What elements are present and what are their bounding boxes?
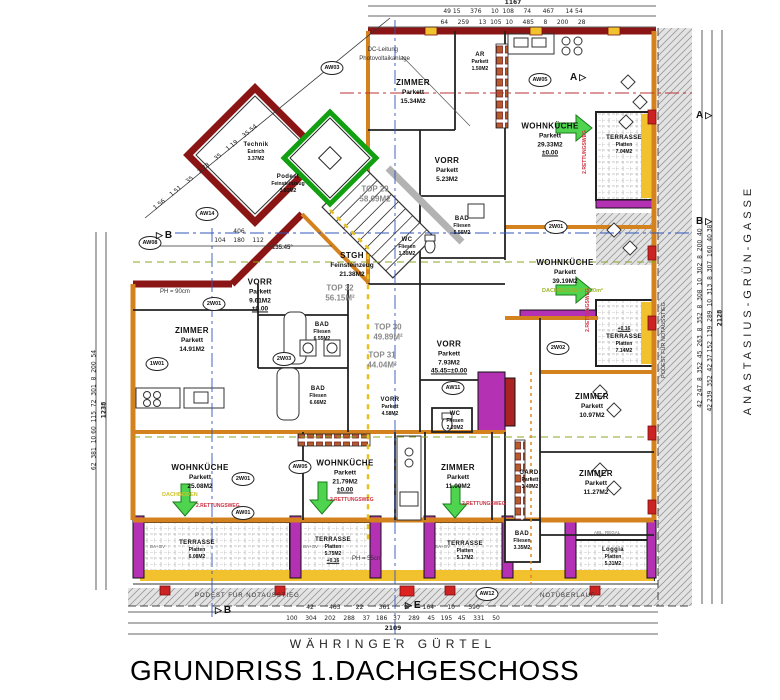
section-marker-a-top: A▷ [570, 72, 586, 83]
room-label-vorr-793: VORR Parkett 7.93M2 45.45=±0.00 [431, 339, 467, 376]
top-29-label: TOP 29 58.69M2 [359, 185, 390, 206]
room-label-technik: Technik Estrich 3.37M2 [243, 141, 268, 163]
top-31-label: TOP 31 44.04M² [367, 351, 396, 372]
top-32-label: TOP 32 56.15M² [325, 284, 354, 305]
triangle-icon: ▷ [215, 605, 222, 616]
dim-bottom-row2: 100 304 202 288 37 186 37 289 45 195 45 … [286, 615, 500, 622]
dim-top-row1: 49 15 376 10 108 74 467 14 54 [443, 8, 582, 15]
room-label-loggia: Loggia Platten 5.31M2 [602, 546, 624, 568]
room-label-wohnkueche-3919: WOHNKÜCHE Parkett 39.19M2 [536, 258, 593, 286]
dc-leitung-label: DC-Leitung [368, 47, 398, 53]
room-label-bad-556: BAD Fliesen 5.56M2 [453, 215, 470, 237]
room-label-bad-655: BAD Fliesen 6.55M2 [313, 321, 330, 343]
section-marker-b-left: ▷B [156, 230, 172, 241]
room-label-stgh: STGH Feinsteinzeug 21.38M2 [330, 251, 373, 279]
wall-tag-2w01-right: 2W01 [545, 220, 568, 234]
room-label-terrasse-714: +0.16 TERRASSE Platten 7.14M2 [606, 326, 642, 354]
room-label-wohnkueche-2508: WOHNKÜCHE Parkett 25.08M2 [171, 463, 228, 491]
room-label-wc-130: WC Fliesen 1.30M2 [398, 236, 415, 258]
top-30-label: TOP 30 49.89M² [373, 323, 402, 344]
dim-right-col1: 42 247 8 352 45 263 8 352 8 308 10 302 8… [697, 228, 704, 407]
room-label-gard: GARD. Parkett 3.40M2 [519, 469, 540, 491]
wall-tag-aw11: AW11 [442, 381, 465, 395]
dim-right-total: 2128 [717, 310, 724, 327]
dim-right-col2: 42 239 352 42 37 152 139 289 10 313 8 30… [707, 224, 714, 411]
dim-left-total: 1238 [101, 402, 108, 419]
room-label-wohnkueche-2179: WOHNKÜCHE Parkett 21.79M2 ±0.00 [316, 458, 373, 495]
room-label-zimmer-1534: ZIMMER Parkett 15.34M2 [396, 78, 430, 106]
wall-tag-aw14: AW14 [196, 207, 219, 221]
rettungsweg-label-4: 2.RETTUNGSWEG [330, 497, 374, 503]
dim-406-sub: 104 180 112 [214, 237, 264, 244]
room-label-zimmer-1491: ZIMMER Parkett 14.91M2 [175, 326, 209, 354]
room-label-terrasse-575: TERRASSE Platten 5.75M2 +0.16 [315, 536, 351, 564]
parapet-height-55: PH = 55cm [352, 556, 382, 562]
room-label-wohnkueche-2933: WOHNKÜCHE Parkett 29.33M2 ±0.00 [521, 121, 578, 158]
room-label-vorr-523: VORR Parkett 5.23M2 [435, 156, 460, 184]
ba-gv-2: BA+GV [303, 544, 318, 549]
dim-top-row2: 64 259 13 105 10 485 8 200 28 [440, 19, 585, 26]
triangle-icon: ▷ [705, 110, 712, 121]
ba-gv-3: BA+GV [435, 544, 450, 549]
triangle-icon: ▷ [705, 216, 712, 227]
room-label-vorr-458: VORR Parkett 4.58M2 [381, 396, 400, 418]
triangle-icon: ▷ [156, 230, 163, 241]
room-label-terrasse-517: TERRASSE Platten 5.17M2 [447, 540, 483, 562]
room-label-terrasse-704: TERRASSE Platten 7.04M2 [606, 134, 642, 156]
triangle-icon: ▷ [579, 72, 586, 83]
wall-tag-aw05-bottom: AW05 [289, 460, 312, 474]
room-label-terrasse-608: TERRASSE Platten 6.08M2 [179, 539, 215, 561]
wall-tag-aw05-top: AW05 [529, 73, 552, 87]
room-label-zimmer-1127: ZIMMER Parkett 11.27M2 [579, 469, 613, 497]
dim-406: 406 [233, 228, 244, 235]
rettungsweg-label-5: 2.RETTUNGSWEG [462, 501, 506, 507]
dachboden-note-yellow: DACHBODEN [162, 492, 198, 498]
rettungsweg-label-1: 2.RETTUNGSWEG [582, 130, 588, 174]
rettungsweg-label-2: 2.RETTUNGSWEG [585, 288, 591, 332]
wall-tag-1w01: 1W01 [146, 357, 169, 371]
room-label-zimmer-1097: ZIMMER Parkett 10.97M2 [575, 392, 609, 420]
section-marker-b-bottom: ▷B [215, 605, 231, 616]
wall-tag-aw03: AW03 [321, 61, 344, 75]
section-marker-b-right: B▷ [696, 216, 712, 227]
dim-bottom-total: 2109 [385, 625, 402, 632]
wall-tag-aw12: AW12 [476, 587, 499, 601]
dachboden-note-green: DACHBODEN 171.20m² [542, 288, 603, 294]
dim-left-col: 62 381 10 60 115 72 301 8 200 54 [91, 350, 98, 470]
lift-shaft [478, 372, 505, 432]
abl-regal-label: ABL. REGAL [594, 530, 620, 535]
wall-tag-2w03: 2W03 [273, 352, 296, 366]
photovoltaik-label: Photovoltaikanlage [359, 56, 410, 62]
room-label-bad-335: BAD Fliesen 3.35M2 [513, 530, 530, 552]
room-label-bad-666: BAD Fliesen 6.66M2 [309, 385, 326, 407]
wall-tag-2w01-bottom: 2W01 [232, 472, 255, 486]
room-label-ar: AR Parkett 1.50M2 [472, 51, 489, 73]
street-name-right: ANASTASIUS-GRÜN-GASSE [742, 185, 754, 416]
drawing-title: GRUNDRISS 1.DACHGESCHOSS [130, 655, 579, 687]
dim-bottom-row1: 42 463 22 361 8 164 10 590 [306, 604, 480, 611]
section-marker-a-right: A▷ [696, 110, 712, 121]
wall-tag-2w02: 2W02 [547, 341, 570, 355]
angle-label: 135.45° [272, 245, 293, 251]
triangle-icon: ▷ [405, 600, 412, 611]
room-label-vorr-961: VORR Parkett 9.61M2 ±0.00 [248, 277, 273, 314]
ba-gv-1: BA+GV [150, 544, 165, 549]
podest-notausstieg-bottom: PODEST FÜR NOTAUSSTIEG [195, 593, 300, 599]
notueberlauf-label: NOTÜBERLAUF [540, 593, 596, 599]
parapet-height-90: PH = 90cm [160, 289, 190, 295]
dim-top-total: 1167 [505, 0, 522, 6]
room-label-wc-220: WC Fliesen 2.20M2 [446, 410, 463, 432]
street-name-bottom: WÄHRINGER GÜRTEL [290, 637, 496, 651]
room-label-zimmer-1100: ZIMMER Parkett 11.00M2 [441, 463, 475, 491]
wall-tag-aw01: AW01 [232, 506, 255, 520]
floor-plan-sheet: ZIMMER Parkett 15.34M2 AR Parkett 1.50M2… [0, 0, 780, 700]
podest-notausstieg-right: PODEST FÜR NOTAUSSTIEG [661, 302, 667, 378]
wall-tag-2w01-left: 2W01 [203, 297, 226, 311]
room-label-podest: Podest Feinsteinzeug 3.81M2 [271, 173, 304, 195]
section-marker-e-bottom: ▷E [405, 600, 421, 611]
